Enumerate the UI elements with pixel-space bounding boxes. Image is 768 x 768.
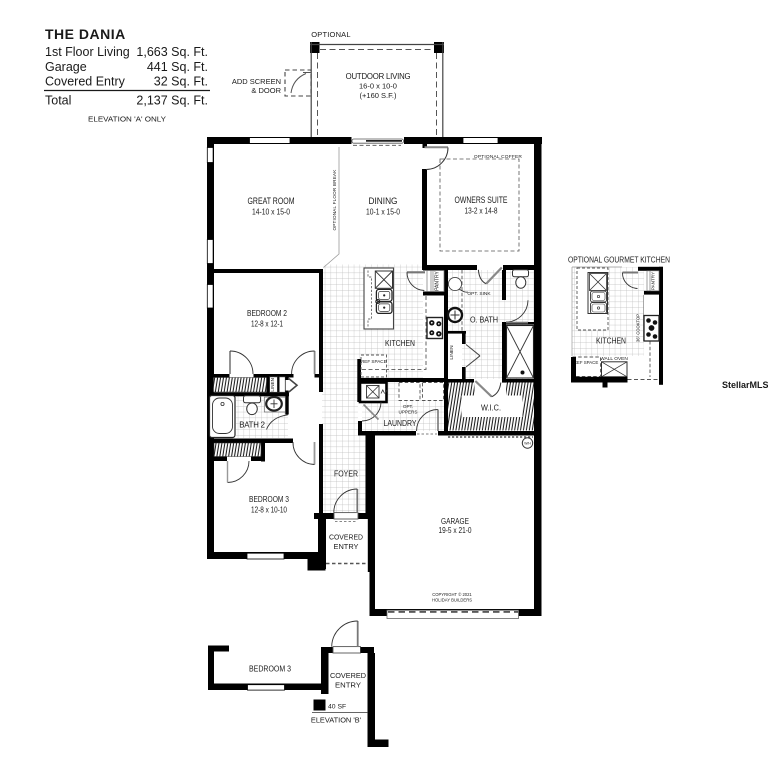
- svg-text:BEDROOM 3: BEDROOM 3: [249, 665, 291, 674]
- svg-text:REF SPACE: REF SPACE: [361, 359, 387, 364]
- svg-text:36" COOKTOP: 36" COOKTOP: [636, 314, 641, 342]
- svg-text:StellarMLS: StellarMLS: [722, 380, 768, 390]
- svg-text:COPYRIGHT © 2021: COPYRIGHT © 2021: [432, 592, 472, 597]
- svg-text:& DOOR: & DOOR: [251, 86, 281, 95]
- svg-text:W.I.C.: W.I.C.: [481, 404, 501, 413]
- svg-text:OPTIONAL COFFER: OPTIONAL COFFER: [474, 154, 522, 160]
- svg-text:441 Sq. Ft.: 441 Sq. Ft.: [147, 60, 208, 74]
- svg-text:BEDROOM 2: BEDROOM 2: [247, 308, 287, 318]
- svg-text:Covered Entry: Covered Entry: [45, 75, 126, 89]
- svg-text:O. BATH: O. BATH: [470, 316, 498, 325]
- svg-text:16-0 x 10-0: 16-0 x 10-0: [359, 82, 397, 91]
- svg-text:14-10 x 15-0: 14-10 x 15-0: [252, 207, 290, 217]
- svg-text:OUTDOOR LIVING: OUTDOOR LIVING: [346, 72, 411, 81]
- svg-text:ELEVATION 'A' ONLY: ELEVATION 'A' ONLY: [88, 115, 166, 124]
- svg-text:FOYER: FOYER: [334, 470, 358, 479]
- svg-text:Total: Total: [45, 94, 71, 108]
- svg-text:BATH 2: BATH 2: [239, 421, 265, 430]
- svg-text:OPT.: OPT.: [403, 404, 413, 409]
- svg-text:THE DANIA: THE DANIA: [45, 26, 126, 42]
- svg-text:1st Floor Living: 1st Floor Living: [45, 45, 130, 59]
- svg-text:PANTRY: PANTRY: [651, 272, 656, 290]
- svg-text:1,663 Sq. Ft.: 1,663 Sq. Ft.: [136, 45, 208, 59]
- svg-text:PANTRY: PANTRY: [435, 270, 441, 290]
- svg-text:DINING: DINING: [369, 196, 398, 206]
- svg-text:12-8 x 12-1: 12-8 x 12-1: [251, 320, 283, 329]
- svg-text:ADD SCREEN: ADD SCREEN: [232, 77, 281, 86]
- svg-text:KITCHEN: KITCHEN: [385, 338, 415, 348]
- svg-text:KITCHEN: KITCHEN: [596, 337, 626, 346]
- svg-text:W/H: W/H: [524, 442, 531, 446]
- svg-text:BEDROOM 3: BEDROOM 3: [249, 494, 289, 504]
- svg-text:ELEVATION 'B': ELEVATION 'B': [311, 716, 362, 725]
- svg-text:40 SF: 40 SF: [328, 704, 346, 711]
- svg-text:2,137 Sq. Ft.: 2,137 Sq. Ft.: [136, 94, 208, 108]
- svg-text:LAUNDRY: LAUNDRY: [384, 419, 418, 428]
- svg-text:(+160 S.F.): (+160 S.F.): [360, 91, 397, 100]
- svg-text:HOLIDAY BUILDERS: HOLIDAY BUILDERS: [432, 598, 472, 603]
- svg-text:GARAGE: GARAGE: [441, 516, 469, 526]
- svg-text:OWNERS SUITE: OWNERS SUITE: [455, 195, 508, 205]
- svg-text:WALL OVEN: WALL OVEN: [600, 356, 628, 362]
- svg-text:REF SPACE: REF SPACE: [574, 360, 599, 365]
- svg-text:LINEN: LINEN: [449, 345, 455, 360]
- svg-text:Garage: Garage: [45, 60, 87, 74]
- svg-text:OPTIONAL: OPTIONAL: [311, 30, 351, 39]
- svg-text:OPT. SINK: OPT. SINK: [467, 291, 491, 297]
- svg-text:COVERED: COVERED: [329, 533, 363, 542]
- svg-text:13-2 x 14-8: 13-2 x 14-8: [465, 206, 498, 216]
- svg-text:ENTRY: ENTRY: [334, 542, 359, 551]
- svg-text:GREAT ROOM: GREAT ROOM: [248, 196, 295, 206]
- svg-text:10-1 x 15-0: 10-1 x 15-0: [366, 207, 400, 217]
- svg-text:ENTRY: ENTRY: [335, 681, 361, 690]
- svg-text:UPPERS: UPPERS: [399, 410, 418, 415]
- svg-text:COVERED: COVERED: [330, 671, 366, 680]
- svg-text:LINEN: LINEN: [270, 378, 275, 392]
- svg-text:32 Sq. Ft.: 32 Sq. Ft.: [154, 75, 208, 89]
- svg-text:12-8 x 10-10: 12-8 x 10-10: [251, 506, 287, 515]
- svg-text:OPTIONAL FLOOR BREAK: OPTIONAL FLOOR BREAK: [332, 169, 337, 231]
- svg-text:19-5 x 21-0: 19-5 x 21-0: [439, 526, 472, 535]
- svg-text:OPTIONAL GOURMET KITCHEN: OPTIONAL GOURMET KITCHEN: [568, 256, 670, 265]
